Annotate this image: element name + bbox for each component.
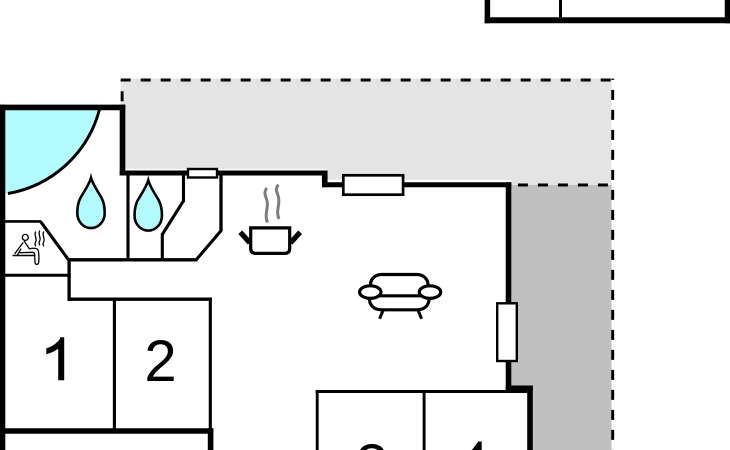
svg-text:2: 2 [144, 329, 176, 394]
svg-text:3: 3 [356, 433, 388, 450]
